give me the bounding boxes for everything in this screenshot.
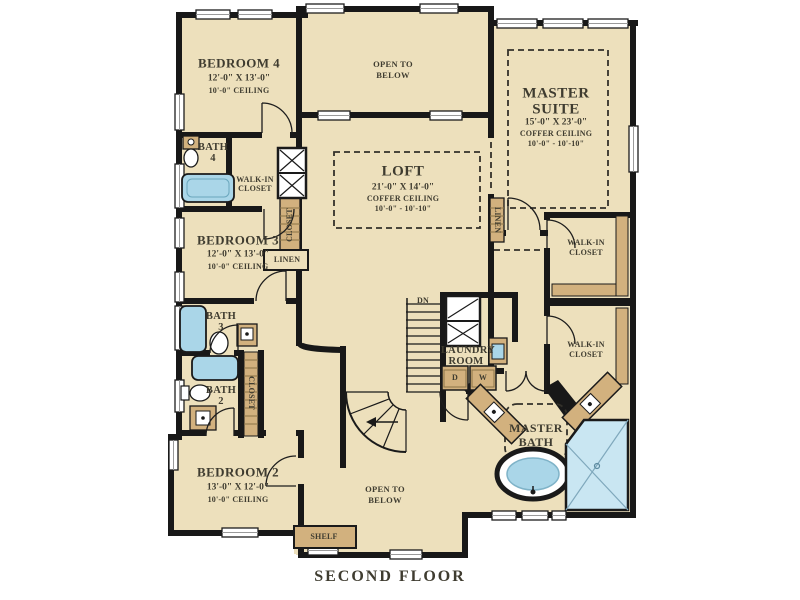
open-to-below-top-2: BELOW	[376, 71, 410, 80]
loft-name: LOFT	[382, 165, 425, 180]
master-suite-name-1: MASTER	[522, 87, 589, 102]
master-bath-name-2: BATH	[519, 436, 554, 448]
bath3-sink	[210, 332, 228, 354]
master-suite-ceiling-type: COFFER CEILING	[520, 130, 592, 138]
master-bath-name-1: MASTER	[509, 422, 563, 434]
floor-plan-canvas: BEDROOM 4 12'-0" X 13'-0" 10'-0" CEILING…	[0, 0, 800, 600]
bath3-name-2: 3	[218, 323, 224, 334]
master-suite-name-2: SUITE	[532, 103, 580, 118]
bath2-name-1: BATH	[206, 386, 236, 397]
bath2-toilet-tank	[181, 386, 189, 400]
loft-walkin-label: CLOSET	[286, 208, 294, 242]
master-suite-ceiling-hts: 10'-0" - 10'-10"	[528, 140, 585, 148]
open-to-below-top-1: OPEN TO	[373, 60, 413, 69]
laundry-name-1: LAUNDRY	[441, 346, 495, 357]
chase-boxes-left	[278, 148, 306, 198]
bath4-walkin-label-2: CLOSET	[238, 185, 272, 193]
walkin1-shelving	[616, 216, 628, 296]
shelf-label: SHELF	[310, 533, 337, 541]
bedroom2-dims: 13'-0" X 12'-0"	[207, 483, 269, 493]
walkin1-label-1: WALK-IN	[567, 239, 604, 247]
walkin2-shelving	[616, 308, 628, 384]
walkin2-label-1: WALK-IN	[567, 341, 604, 349]
bath3-tub	[180, 306, 206, 352]
bath4-name-1: BATH	[198, 143, 228, 154]
bath3-name-1: BATH	[206, 312, 236, 323]
bedroom4-name: BEDROOM 4	[198, 57, 280, 70]
master-suite-dims: 15'-0" X 23'-0"	[525, 118, 587, 128]
chase-boxes-laundry	[446, 296, 480, 346]
loft-dims: 21'-0" X 14'-0"	[372, 183, 434, 193]
walkin2-label-2: CLOSET	[569, 351, 603, 359]
floor-plan-drawing	[0, 0, 800, 600]
loft-ceiling-type: COFFER CEILING	[367, 195, 439, 203]
hall-closet-label: CLOSET	[247, 376, 255, 410]
walkin1-label-2: CLOSET	[569, 249, 603, 257]
linen-left-label: LINEN	[274, 256, 300, 264]
linen-right-label: LINEN	[493, 207, 501, 233]
bedroom2-name: BEDROOM 2	[197, 466, 279, 479]
loft-ceiling-hts: 10'-0" - 10'-10"	[375, 205, 432, 213]
open-to-below-bottom-2: BELOW	[368, 496, 402, 505]
bedroom4-ceiling: 10'-0" CEILING	[209, 87, 270, 95]
bath4-name-2: 4	[210, 154, 216, 165]
bath2-name-2: 2	[218, 397, 224, 408]
stairs-dn-label: DN	[417, 297, 429, 305]
bath2-tub	[192, 356, 238, 380]
bedroom3-dims: 12'-0" X 13'-0"	[207, 250, 269, 260]
bath4-walkin-label-1: WALK-IN	[236, 176, 273, 184]
bedroom2-ceiling: 10'-0" CEILING	[208, 496, 269, 504]
laundry-name-2: ROOM	[448, 357, 483, 368]
bedroom3-ceiling: 10'-0" CEILING	[208, 263, 269, 271]
bath4-tub	[182, 174, 234, 202]
washer-label: W	[479, 374, 487, 382]
plan-title: SECOND FLOOR	[314, 569, 466, 585]
bedroom4-dims: 12'-0" X 13'-0"	[208, 74, 270, 84]
dryer-label: D	[452, 374, 458, 382]
walkin1-shelving-bottom	[552, 284, 616, 296]
open-to-below-bottom-1: OPEN TO	[365, 485, 405, 494]
bath4-toilet-bowl	[184, 149, 198, 167]
bedroom3-name: BEDROOM 3	[197, 234, 279, 247]
